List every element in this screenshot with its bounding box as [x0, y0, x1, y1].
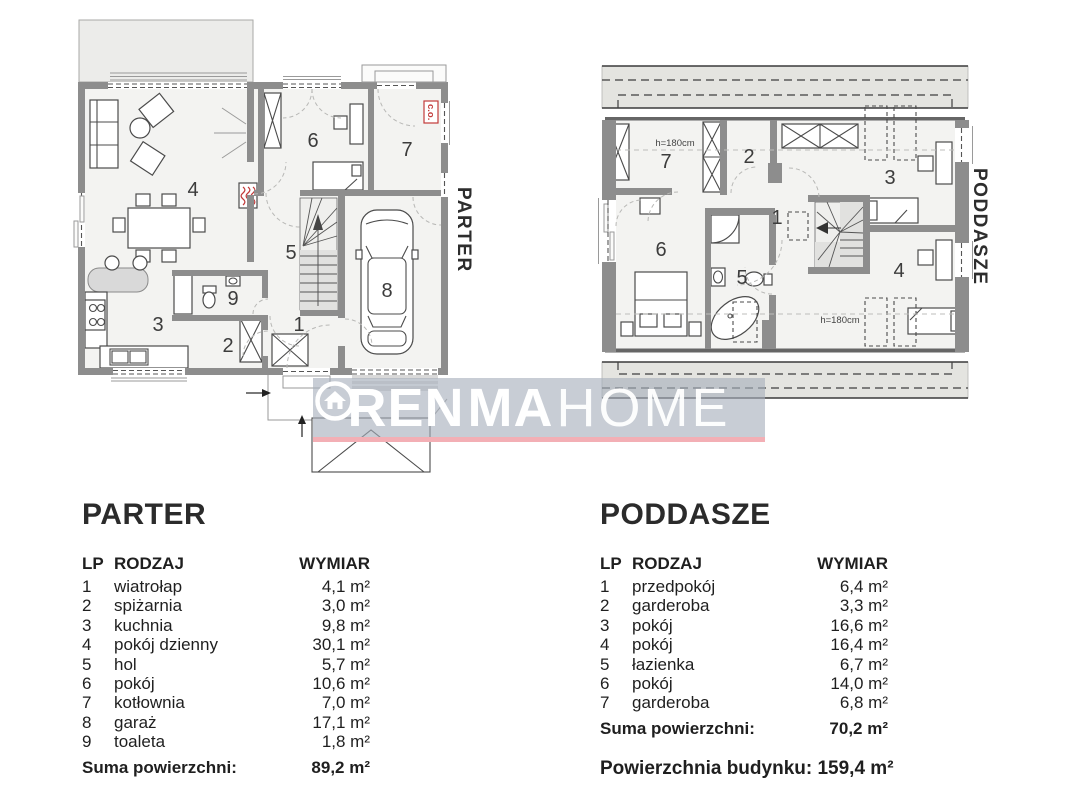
- cell-rodzaj: garaż: [114, 713, 275, 732]
- room-label-2: 2: [222, 335, 233, 357]
- table-row: 4pokój16,4 m²: [600, 635, 888, 654]
- room-label-7: 7: [401, 139, 412, 161]
- cell-rodzaj: hol: [114, 655, 275, 674]
- cell-rodzaj: garderoba: [632, 693, 793, 712]
- cell-wymiar: 16,6 m²: [793, 616, 888, 635]
- room-label-p6: 6: [655, 239, 666, 261]
- col-wymiar: WYMIAR: [793, 554, 888, 574]
- poddasze-side-label: PODDASZE: [969, 168, 990, 286]
- cell-wymiar: 10,6 m²: [275, 674, 370, 693]
- room-label-1: 1: [293, 314, 304, 336]
- table-row: 3pokój16,6 m²: [600, 616, 888, 635]
- table-row: 2garderoba3,3 m²: [600, 596, 888, 615]
- col-rodzaj: RODZAJ: [114, 554, 275, 574]
- sum-label: Suma powierzchni:: [600, 719, 755, 739]
- h-label-top: h=180cm: [655, 138, 694, 149]
- room6-wardrobe: [264, 93, 281, 148]
- watermark-underline: [313, 437, 765, 442]
- cell-wymiar: 6,8 m²: [793, 693, 888, 712]
- table-row: 2spiżarnia3,0 m²: [82, 596, 370, 615]
- table-header: LP RODZAJ WYMIAR: [82, 554, 370, 574]
- col-wymiar: WYMIAR: [275, 554, 370, 574]
- cell-lp: 3: [82, 616, 114, 635]
- hall-wardrobe: [272, 334, 308, 366]
- watermark-text-ren: REN: [348, 381, 465, 435]
- watermark-text-home: HOME: [557, 381, 731, 435]
- room-label-p3: 3: [884, 167, 895, 189]
- cell-lp: 5: [82, 655, 114, 674]
- parter-table-title: PARTER: [82, 498, 370, 532]
- cell-rodzaj: łazienka: [632, 655, 793, 674]
- staircase-parter: [300, 198, 337, 310]
- table-sum-row: Suma powierzchni: 89,2 m²: [82, 758, 370, 778]
- table-row: 8garaż17,1 m²: [82, 713, 370, 732]
- cell-lp: 1: [600, 577, 632, 596]
- watermark-text-ma: MA: [468, 381, 554, 435]
- table-sum-row: Suma powierzchni: 70,2 m²: [600, 719, 888, 739]
- cell-wymiar: 9,8 m²: [275, 616, 370, 635]
- table-row: 9toaleta1,8 m²: [82, 732, 370, 751]
- room-label-3: 3: [152, 314, 163, 336]
- room-label-9: 9: [227, 288, 238, 310]
- table-header: LP RODZAJ WYMIAR: [600, 554, 888, 574]
- table-row: 4pokój dzienny30,1 m²: [82, 635, 370, 654]
- watermark-band: REN MA HOME: [313, 378, 765, 437]
- cell-wymiar: 7,0 m²: [275, 693, 370, 712]
- cell-wymiar: 6,7 m²: [793, 655, 888, 674]
- cell-rodzaj: garderoba: [632, 596, 793, 615]
- cell-rodzaj: pokój: [632, 616, 793, 635]
- cell-lp: 4: [600, 635, 632, 654]
- cell-wymiar: 3,0 m²: [275, 596, 370, 615]
- room-label-6: 6: [307, 130, 318, 152]
- cell-wymiar: 14,0 m²: [793, 674, 888, 693]
- cell-rodzaj: pokój dzienny: [114, 635, 275, 654]
- cell-lp: 8: [82, 713, 114, 732]
- total-value: 159,4 m²: [817, 758, 893, 779]
- cell-lp: 6: [600, 674, 632, 693]
- room-label-p4: 4: [893, 260, 904, 282]
- wardrobe-room3: [782, 124, 858, 148]
- wardrobe-column: [703, 122, 721, 192]
- col-lp: LP: [600, 554, 632, 574]
- cell-wymiar: 30,1 m²: [275, 635, 370, 654]
- cell-rodzaj: pokój: [114, 674, 275, 693]
- cell-rodzaj: spiżarnia: [114, 596, 275, 615]
- cell-lp: 4: [82, 635, 114, 654]
- cell-lp: 5: [600, 655, 632, 674]
- cell-wymiar: 4,1 m²: [275, 577, 370, 596]
- cell-rodzaj: toaleta: [114, 732, 275, 751]
- table-row: 3kuchnia9,8 m²: [82, 616, 370, 635]
- co-badge: c.o.: [424, 101, 438, 123]
- table-row: 5łazienka6,7 m²: [600, 655, 888, 674]
- table-row: 5hol5,7 m²: [82, 655, 370, 674]
- table-row: 6pokój14,0 m²: [600, 674, 888, 693]
- cell-wymiar: 6,4 m²: [793, 577, 888, 596]
- watermark-house-icon: [313, 378, 357, 422]
- building-total: Powierzchnia budynku: 159,4 m²: [600, 758, 894, 780]
- table-row: 1wiatrołap4,1 m²: [82, 577, 370, 596]
- h-label-bottom: h=180cm: [820, 315, 859, 326]
- table-row: 6pokój10,6 m²: [82, 674, 370, 693]
- room-label-5: 5: [285, 242, 296, 264]
- cell-lp: 2: [82, 596, 114, 615]
- cell-rodzaj: kuchnia: [114, 616, 275, 635]
- cell-lp: 6: [82, 674, 114, 693]
- page: c.o. 4 6 7 5 8 9 3 2 1 PARTER: [0, 0, 1078, 812]
- col-lp: LP: [82, 554, 114, 574]
- parter-side-label: PARTER: [453, 187, 474, 273]
- cell-lp: 7: [82, 693, 114, 712]
- cell-lp: 2: [600, 596, 632, 615]
- cell-lp: 1: [82, 577, 114, 596]
- total-label: Powierzchnia budynku:: [600, 758, 812, 779]
- room-label-p2: 2: [743, 146, 754, 168]
- room-label-p7: 7: [660, 151, 671, 173]
- cell-rodzaj: przedpokój: [632, 577, 793, 596]
- roof-band-top: [602, 66, 968, 108]
- poddasze-table: PODDASZE LP RODZAJ WYMIAR 1przedpokój6,4…: [600, 498, 888, 739]
- cell-rodzaj: kotłownia: [114, 693, 275, 712]
- cell-lp: 7: [600, 693, 632, 712]
- poddasze-table-title: PODDASZE: [600, 498, 888, 532]
- cell-rodzaj: wiatrołap: [114, 577, 275, 596]
- parter-table: PARTER LP RODZAJ WYMIAR 1wiatrołap4,1 m²…: [82, 498, 370, 778]
- table-row: 7garderoba6,8 m²: [600, 693, 888, 712]
- room-label-4: 4: [187, 179, 198, 201]
- cell-wymiar: 3,3 m²: [793, 596, 888, 615]
- table-row: 7kotłownia7,0 m²: [82, 693, 370, 712]
- cell-rodzaj: pokój: [632, 674, 793, 693]
- room-label-8: 8: [381, 280, 392, 302]
- col-rodzaj: RODZAJ: [632, 554, 793, 574]
- cell-wymiar: 16,4 m²: [793, 635, 888, 654]
- cell-wymiar: 1,8 m²: [275, 732, 370, 751]
- cell-wymiar: 5,7 m²: [275, 655, 370, 674]
- cell-rodzaj: pokój: [632, 635, 793, 654]
- sum-value: 89,2 m²: [311, 758, 370, 778]
- cell-lp: 9: [82, 732, 114, 751]
- cell-lp: 3: [600, 616, 632, 635]
- cell-wymiar: 17,1 m²: [275, 713, 370, 732]
- staircase-poddasze: [815, 202, 863, 267]
- room-label-p5: 5: [736, 267, 747, 289]
- room-label-p1: 1: [771, 207, 782, 229]
- table-row: 1przedpokój6,4 m²: [600, 577, 888, 596]
- sum-label: Suma powierzchni:: [82, 758, 237, 778]
- co-label: c.o.: [425, 104, 436, 120]
- poddasze-plan: h=180cm h=180cm 7 2 3 1 6 5 4 PODDASZE: [599, 66, 991, 398]
- sum-value: 70,2 m²: [829, 719, 888, 739]
